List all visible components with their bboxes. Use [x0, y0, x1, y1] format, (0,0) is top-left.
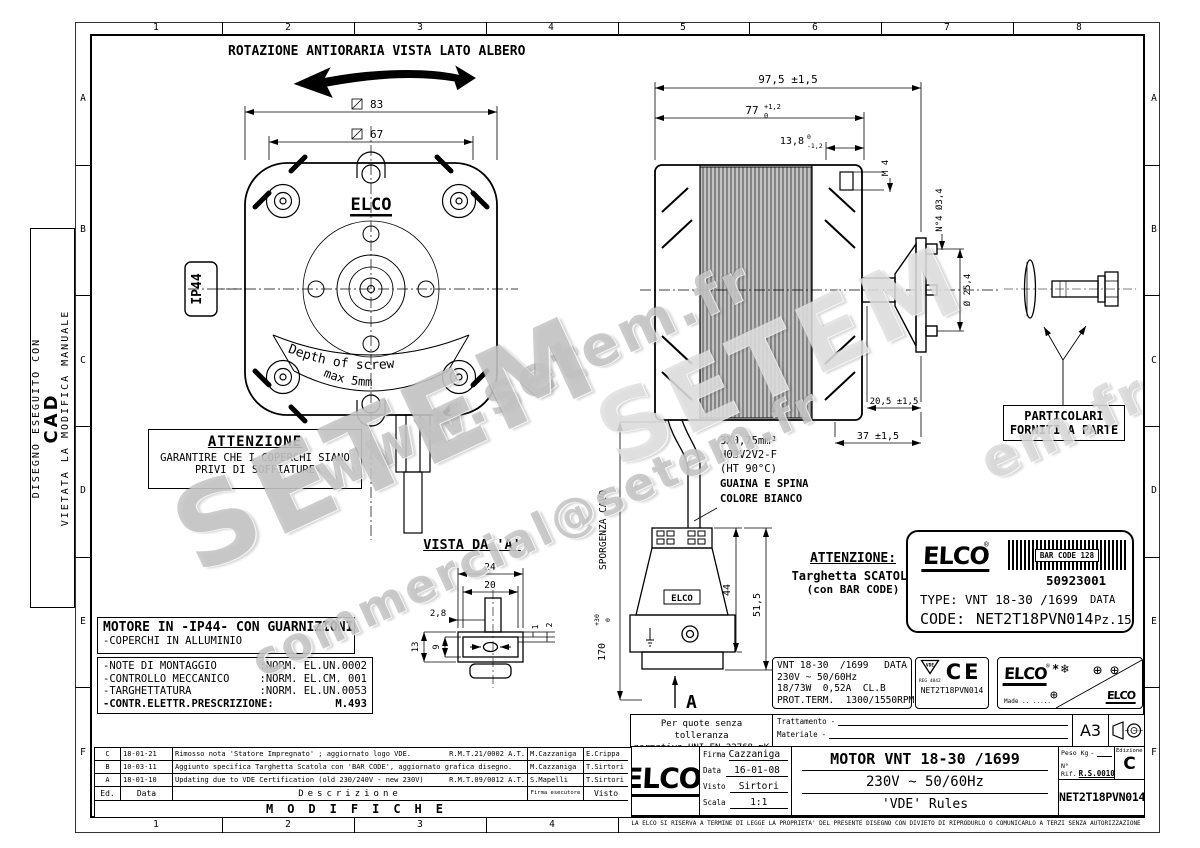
- cable-spec-1: 3X0,75mm²: [720, 435, 777, 447]
- grid-divider: [75, 426, 90, 427]
- grid-ref-right: C: [1147, 355, 1161, 367]
- rotation-note: ROTAZIONE ANTIORARIA VISTA LATO ALBERO: [228, 44, 528, 59]
- grid-divider: [1145, 165, 1160, 166]
- elco-logo: ELCO: [921, 544, 990, 572]
- globe-icon: ⊕: [1093, 661, 1102, 679]
- grid-ref-top: 8: [1069, 22, 1089, 33]
- rev-firma: S.Mapelli: [528, 774, 584, 787]
- vde-reg-number: REG 4842: [919, 679, 941, 684]
- format-box: A3: [1072, 714, 1109, 747]
- scala-row: Scala 1:1: [703, 797, 788, 813]
- grid-divider: [75, 687, 90, 688]
- elco-logo-underline: [350, 214, 392, 217]
- dim-51-5: 51,5: [752, 593, 763, 617]
- norm-row: -CONTR.ELETTR.PRESCRIZIONE: M.493: [103, 698, 367, 711]
- peso-label: Peso Kg: [1061, 749, 1088, 757]
- grid-ref-top: 2: [278, 22, 298, 33]
- asterisk-icon: *: [1052, 662, 1059, 676]
- motor-side-body: [655, 165, 862, 420]
- data-label: Data: [703, 766, 721, 775]
- spare-parts-line1: PARTICOLARI: [1004, 409, 1124, 423]
- vista-a-drawing: 24 20 2,8 13 9 1 2: [400, 528, 585, 718]
- code-value: NET2T18PVN014: [976, 610, 1093, 628]
- dim-77-tol-up: +1,2: [764, 103, 781, 111]
- rev-ref-text: R.M.T.21/0002 A.T.: [449, 750, 525, 758]
- rev-date-value: 10-03-11: [123, 763, 157, 771]
- dim-77-tol-dn: 0: [764, 112, 768, 120]
- trattamento-value: -: [831, 717, 836, 726]
- dim-170-tol-dn: 0: [604, 618, 612, 622]
- grid-divider: [1145, 426, 1160, 427]
- firma-row: Firma Cazzaniga: [703, 749, 788, 765]
- norm-label: -NOTE DI MONTAGGIO: [103, 660, 217, 673]
- elco-logo-reg: ®: [984, 540, 989, 549]
- rev-desc: Updating due to VDE Certification (old 2…: [173, 774, 528, 787]
- rev-firma: M.Cazzaniga: [528, 761, 584, 774]
- warning-line2: PRIVI DI SOFFIATURE: [149, 464, 361, 476]
- grid-ref-left: B: [76, 224, 90, 236]
- firma-value: Cazzaniga: [729, 749, 788, 761]
- grid-ref-left: D: [76, 485, 90, 497]
- grid-ref-bottom: 2: [278, 819, 298, 830]
- norm-value: :NORM. EL.CM. 001: [260, 673, 367, 686]
- norm-value: M.493: [335, 698, 367, 711]
- visto-label: Visto: [703, 782, 726, 791]
- cad-note: DISEGNO ESEGUITO CON CAD VIETATA LA MODI…: [30, 230, 74, 606]
- edizione-cell: Edizione C: [1114, 746, 1145, 780]
- barcode-number: 50923001: [1046, 573, 1106, 588]
- grid-divider: [1145, 557, 1160, 558]
- snowflake-icon: ❄: [1061, 662, 1069, 677]
- rev-visto-value: T.Sirtori: [586, 776, 624, 784]
- motor-norms-box: -NOTE DI MONTAGGIO :NORM. EL.UN.0002 -CO…: [97, 657, 373, 714]
- ce-mark: CE: [946, 660, 982, 684]
- drawing-code: NET2T18PVN014: [1059, 790, 1145, 804]
- dim-138-tol-up: 0: [807, 133, 811, 141]
- grid-divider: [486, 22, 487, 34]
- rev-header-visto: Visto: [584, 787, 628, 801]
- elco-logo: ELCO: [622, 765, 703, 797]
- grid-ref-left: C: [76, 355, 90, 367]
- grid-divider: [881, 22, 882, 34]
- grid-divider: [1145, 295, 1160, 296]
- grid-ref-left: F: [76, 747, 90, 759]
- rev-header-desc: Descrizione: [173, 787, 528, 801]
- visto-row: Visto Sirtori: [703, 781, 788, 797]
- dim-170-tol-up: +30: [593, 614, 601, 626]
- grid-divider: [486, 818, 487, 833]
- grid-ref-bottom: 4: [542, 819, 562, 830]
- copyright-disclaimer: LA ELCO SI RISERVA A TERMINE DI LEGGE LA…: [630, 820, 1142, 827]
- edizione-value: C: [1116, 754, 1143, 774]
- peso-row: Peso Kg -: [1061, 749, 1112, 757]
- rev-date-value: 18-01-10: [123, 776, 157, 784]
- drawing-title-line2: 230V ~ 50/60Hz: [802, 771, 1048, 794]
- dim-1: 1: [531, 624, 540, 629]
- rev-visto: T.Sirtori: [584, 761, 628, 774]
- rev-visto-value: T.Sirtori: [586, 763, 624, 771]
- vde-text: VDE: [926, 663, 934, 669]
- warning-box: ATTENZIONE GARANTIRE CHE I COPERCHI SIAN…: [148, 429, 362, 489]
- rev-desc: Aggiunto specifica Targhetta Scatola con…: [173, 761, 528, 774]
- elco-logo: ELCO: [1002, 666, 1048, 686]
- grid-divider: [75, 295, 90, 296]
- rev-firma-value: M.Cazzaniga: [530, 763, 576, 771]
- warning-title: ATTENZIONE: [149, 434, 361, 450]
- grid-ref-left: E: [76, 616, 90, 628]
- cable-spec-note: 3X0,75mm² H03V2V2-F (HT 90°C) GUAINA E S…: [694, 435, 809, 521]
- dim-205: 20,5 ±1,5: [870, 397, 919, 407]
- dim-44: 44: [722, 584, 733, 596]
- data-plate-row1: VNT 18-30 /1699 DATA: [777, 660, 907, 672]
- label-warning-line2: (con BAR CODE): [783, 583, 923, 596]
- dim-m4: M 4: [881, 160, 891, 176]
- peso-rif-cell: Peso Kg - N° Rif. R.S.0010/08: [1058, 746, 1115, 780]
- grid-ref-right: F: [1147, 747, 1161, 759]
- grid-ref-right: B: [1147, 224, 1161, 236]
- norm-label: -TARGHETTATURA: [103, 685, 192, 698]
- dim-20: 20: [484, 580, 496, 591]
- modifiche-row: MODIFICHE: [95, 801, 628, 816]
- rev-header-date: Data: [121, 787, 173, 801]
- header-text: Data: [137, 789, 156, 798]
- grid-divider: [618, 22, 619, 34]
- rev-ed: A: [95, 774, 121, 787]
- rev-visto: E.Crippa: [584, 748, 628, 761]
- grid-ref-bottom: 3: [410, 819, 430, 830]
- sporgenza-label: SPORGENZA CAVO: [598, 490, 609, 570]
- dim-83: 83: [370, 98, 383, 111]
- dim-2-8: 2,8: [430, 609, 446, 619]
- plug-logo: ELCO: [671, 594, 693, 604]
- rev-ref-text: R.M.T.09/0012 A.T.: [449, 776, 525, 784]
- globe-icon: ⊕: [1110, 661, 1119, 679]
- titleblock-logo-cell: ELCO ®: [630, 746, 700, 816]
- elco-logo-small: ELCO: [1106, 690, 1137, 704]
- washer-and-bolt: [1004, 260, 1136, 318]
- norm-value: :NORM. EL.UN.0053: [260, 685, 367, 698]
- materiale-row: Materiale -: [777, 730, 1068, 739]
- grid-divider: [1013, 22, 1014, 34]
- grid-divider: [1145, 687, 1160, 688]
- grid-ref-top: 1: [146, 22, 166, 33]
- rev-visto: T.Sirtori: [584, 774, 628, 787]
- dim-2: 2: [545, 622, 554, 627]
- spare-parts-box: PARTICOLARI FORNITI A PARTE: [1003, 405, 1125, 441]
- label-warning-title: ATTENZIONE:: [783, 551, 923, 566]
- titleblock-signatures: Firma Cazzaniga Data 16-01-08 Visto Sirt…: [699, 746, 792, 816]
- rev-firma-value: M.Cazzaniga: [530, 750, 576, 758]
- ip44-text: IP44: [190, 273, 205, 304]
- cert-box: VDE REG 4842 CE NET2T18PVN014: [915, 657, 989, 709]
- cable-spec-3: (HT 90°C): [720, 463, 777, 475]
- materiale-label: Materiale: [777, 730, 818, 739]
- data-row: Data 16-01-08: [703, 765, 788, 781]
- made-in-text: Made .. .....: [1004, 698, 1051, 705]
- grid-divider: [222, 818, 223, 833]
- plate-data-label: DATA: [884, 660, 907, 672]
- elco-logo-front: ELCO: [351, 195, 392, 215]
- dim-67: 67: [370, 128, 383, 141]
- norm-label: -CONTR.ELETTR.PRESCRIZIONE:: [103, 698, 274, 711]
- globe-icon: ⊕: [1050, 688, 1058, 703]
- header-text: Ed.: [100, 789, 114, 798]
- dim-37: 37 ±1,5: [857, 431, 899, 442]
- warning-line1: GARANTIRE CHE I COPERCHI SIANO: [149, 452, 361, 464]
- cad-note-big: CAD: [43, 392, 62, 443]
- tolerance-box: Per quote senza tolleranza normativa UNI…: [630, 714, 773, 747]
- dim-pcd: Ø 25,4: [962, 274, 973, 307]
- rule-line: [829, 731, 1068, 739]
- norm-row: -CONTROLLO MECCANICO :NORM. EL.CM. 001: [103, 673, 367, 686]
- plate-type: VNT 18-30 /1699: [777, 660, 869, 672]
- motor-spec-title: MOTORE IN -IP44- CON GUARNIZIONI: [103, 620, 349, 635]
- grid-ref-left: A: [76, 93, 90, 105]
- cad-note-line2: VIETATA LA MODIFICA MANUALE: [61, 310, 72, 527]
- data-plate: VNT 18-30 /1699 DATA 230V ~ 50/60Hz 18/7…: [772, 657, 912, 709]
- rev-date: 18-01-10: [121, 774, 173, 787]
- rotation-arrow: [292, 64, 477, 99]
- grid-ref-top: 7: [937, 22, 957, 33]
- rev-header-firma: Firma esecutore: [528, 787, 584, 801]
- trattamento-row: Trattamento -: [777, 717, 1068, 726]
- barcode-text: BAR CODE 128: [1035, 549, 1099, 562]
- rev-ed-value: B: [105, 763, 109, 771]
- connector-body: [458, 590, 523, 688]
- grid-ref-right: D: [1147, 485, 1161, 497]
- spare-parts-drawing: [1000, 250, 1140, 410]
- grid-divider: [618, 818, 619, 833]
- format-a3: A3: [1080, 721, 1101, 740]
- barcode: BAR CODE 128: [1008, 540, 1126, 570]
- header-text: Descrizione: [298, 789, 402, 799]
- rev-firma-value: S.Mapelli: [530, 776, 568, 784]
- data-value: 16-01-08: [726, 765, 788, 777]
- logos-box: ELCO ® * ❄ ⊕ ⊕ Made .. ..... ⊕ ELCO: [997, 657, 1143, 709]
- norm-label: -CONTROLLO MECCANICO: [103, 673, 229, 686]
- spare-parts-line2: FORNITI A PARTE: [1004, 423, 1124, 437]
- code-label: CODE:: [920, 610, 965, 628]
- grid-divider: [222, 22, 223, 34]
- cert-code: NET2T18PVN014: [919, 686, 985, 695]
- rev-ed: C: [95, 748, 121, 761]
- data-label: DATA: [1090, 594, 1115, 606]
- drawing-sheet: 1 2 3 4 5 6 7 8 1 2 3 4 LA ELCO SI RISER…: [0, 0, 1200, 848]
- vde-logo: VDE REG 4842: [919, 659, 941, 684]
- material-box: Trattamento - Materiale -: [772, 714, 1073, 747]
- rev-visto-value: E.Crippa: [586, 750, 620, 758]
- data-plate-row2: 230V ~ 50/60Hz: [777, 672, 907, 684]
- peso-value: -: [1090, 749, 1094, 757]
- dim-9: 9: [432, 644, 442, 649]
- rev-ed: B: [95, 761, 121, 774]
- drawing-code-cell: NET2T18PVN014: [1058, 779, 1145, 816]
- motor-spec-subtitle: -COPERCHI IN ALLUMINIO: [103, 635, 349, 647]
- dim-24: 24: [484, 562, 496, 573]
- spare-parts-leaders: [1044, 326, 1086, 405]
- square-symbol-icon: [352, 99, 362, 139]
- rev-firma: M.Cazzaniga: [528, 748, 584, 761]
- rev-desc-text: Rimosso nota 'Statore Impregnato' ; aggi…: [175, 750, 411, 758]
- type-value: VNT 18-30 /1699: [965, 592, 1078, 607]
- grid-divider: [354, 22, 355, 34]
- rev-header-ed: Ed.: [95, 787, 121, 801]
- drawing-title-line1: MOTOR VNT 18-30 /1699: [802, 748, 1048, 771]
- dim-holes: N°4 Ø3,4: [934, 188, 945, 231]
- materiale-value: -: [822, 730, 827, 739]
- data-plate-row4: PROT.TERM. 1300/1550RPM: [777, 695, 907, 707]
- scala-label: Scala: [703, 798, 726, 807]
- grid-ref-right: A: [1147, 93, 1161, 105]
- projection-symbol-box: [1108, 714, 1145, 747]
- rev-date: 10-03-11: [121, 761, 173, 774]
- rev-date-value: 18-01-21: [123, 750, 157, 758]
- rev-desc-text: Aggiunto specifica Targhetta Scatola con…: [175, 763, 512, 771]
- firma-label: Firma: [703, 750, 726, 759]
- label-warning-line1: Targhetta SCATOLA: [783, 569, 923, 583]
- view-a-label: A: [686, 692, 697, 713]
- rev-ed-value: A: [105, 776, 109, 784]
- rev-desc-text: Updating due to VDE Certification (old 2…: [175, 776, 424, 784]
- rif-row: N° Rif. R.S.0010/08: [1061, 762, 1112, 778]
- grid-ref-top: 5: [673, 22, 693, 33]
- cable-spec-2: H03V2V2-F: [720, 449, 777, 461]
- dim-138: 13,8: [780, 136, 804, 147]
- modifiche-text: MODIFICHE: [266, 802, 457, 816]
- dim-overall: 97,5 ±1,5: [758, 73, 818, 86]
- grid-divider: [749, 22, 750, 34]
- shaft-and-flange: [862, 238, 937, 352]
- rev-date: 18-01-21: [121, 748, 173, 761]
- data-plate-row3: 18/73W 0,52A CL.B: [777, 683, 907, 695]
- grid-divider: [354, 818, 355, 833]
- grid-ref-top: 3: [410, 22, 430, 33]
- qty-value: Pz.15: [1094, 612, 1132, 627]
- motor-spec-box: MOTORE IN -IP44- CON GUARNIZIONI -COPERC…: [97, 617, 355, 654]
- first-angle-projection-icon: [1109, 715, 1144, 746]
- header-text: Firma esecutore: [531, 790, 581, 796]
- grid-divider: [75, 557, 90, 558]
- grid-ref-top: 6: [805, 22, 825, 33]
- rule-line: [1097, 751, 1112, 757]
- tolerance-line1: Per quote senza tolleranza: [633, 718, 770, 742]
- titleblock-title-cell: MOTOR VNT 18-30 /1699 230V ~ 50/60Hz 'VD…: [791, 746, 1059, 816]
- type-label: TYPE:: [920, 592, 958, 607]
- norm-value: :NORM. EL.UN.0002: [260, 660, 367, 673]
- dim-138-tol-dn: -1,2: [807, 142, 823, 150]
- dim-13: 13: [411, 642, 421, 653]
- elco-nameplate: ELCO ® BAR CODE 128 50923001 TYPE: VNT 1…: [906, 530, 1134, 633]
- rev-desc: Rimosso nota 'Statore Impregnato' ; aggi…: [173, 748, 528, 761]
- rev-ed-value: C: [105, 750, 109, 758]
- dim-170: 170: [597, 643, 608, 661]
- grid-divider: [75, 165, 90, 166]
- grid-ref-bottom: 1: [146, 819, 166, 830]
- visto-value: Sirtori: [730, 781, 788, 793]
- revision-table: C 18-01-21 Rimosso nota 'Statore Impregn…: [94, 747, 632, 818]
- norm-row: -NOTE DI MONTAGGIO :NORM. EL.UN.0002: [103, 660, 367, 673]
- cable-spec-5: COLORE BIANCO: [720, 493, 802, 505]
- rule-line: [838, 718, 1068, 726]
- norm-row: -TARGHETTATURA :NORM. EL.UN.0053: [103, 685, 367, 698]
- dim-77: 77: [745, 104, 758, 117]
- scala-value: 1:1: [730, 797, 788, 809]
- elco-logo-reg: ®: [1046, 663, 1050, 670]
- cert-logos-row: VDE REG 4842 CE: [919, 659, 985, 684]
- grid-ref-top: 4: [541, 22, 561, 33]
- grid-ref-right: E: [1147, 616, 1161, 628]
- label-warning: ATTENZIONE: Targhetta SCATOLA (con BAR C…: [783, 551, 923, 596]
- rif-label: N° Rif.: [1061, 762, 1077, 778]
- cable-spec-4: GUAINA E SPINA: [720, 478, 809, 490]
- drawing-title-line3: 'VDE' Rules: [802, 794, 1048, 817]
- trattamento-label: Trattamento: [777, 717, 827, 726]
- header-text: Visto: [594, 789, 618, 798]
